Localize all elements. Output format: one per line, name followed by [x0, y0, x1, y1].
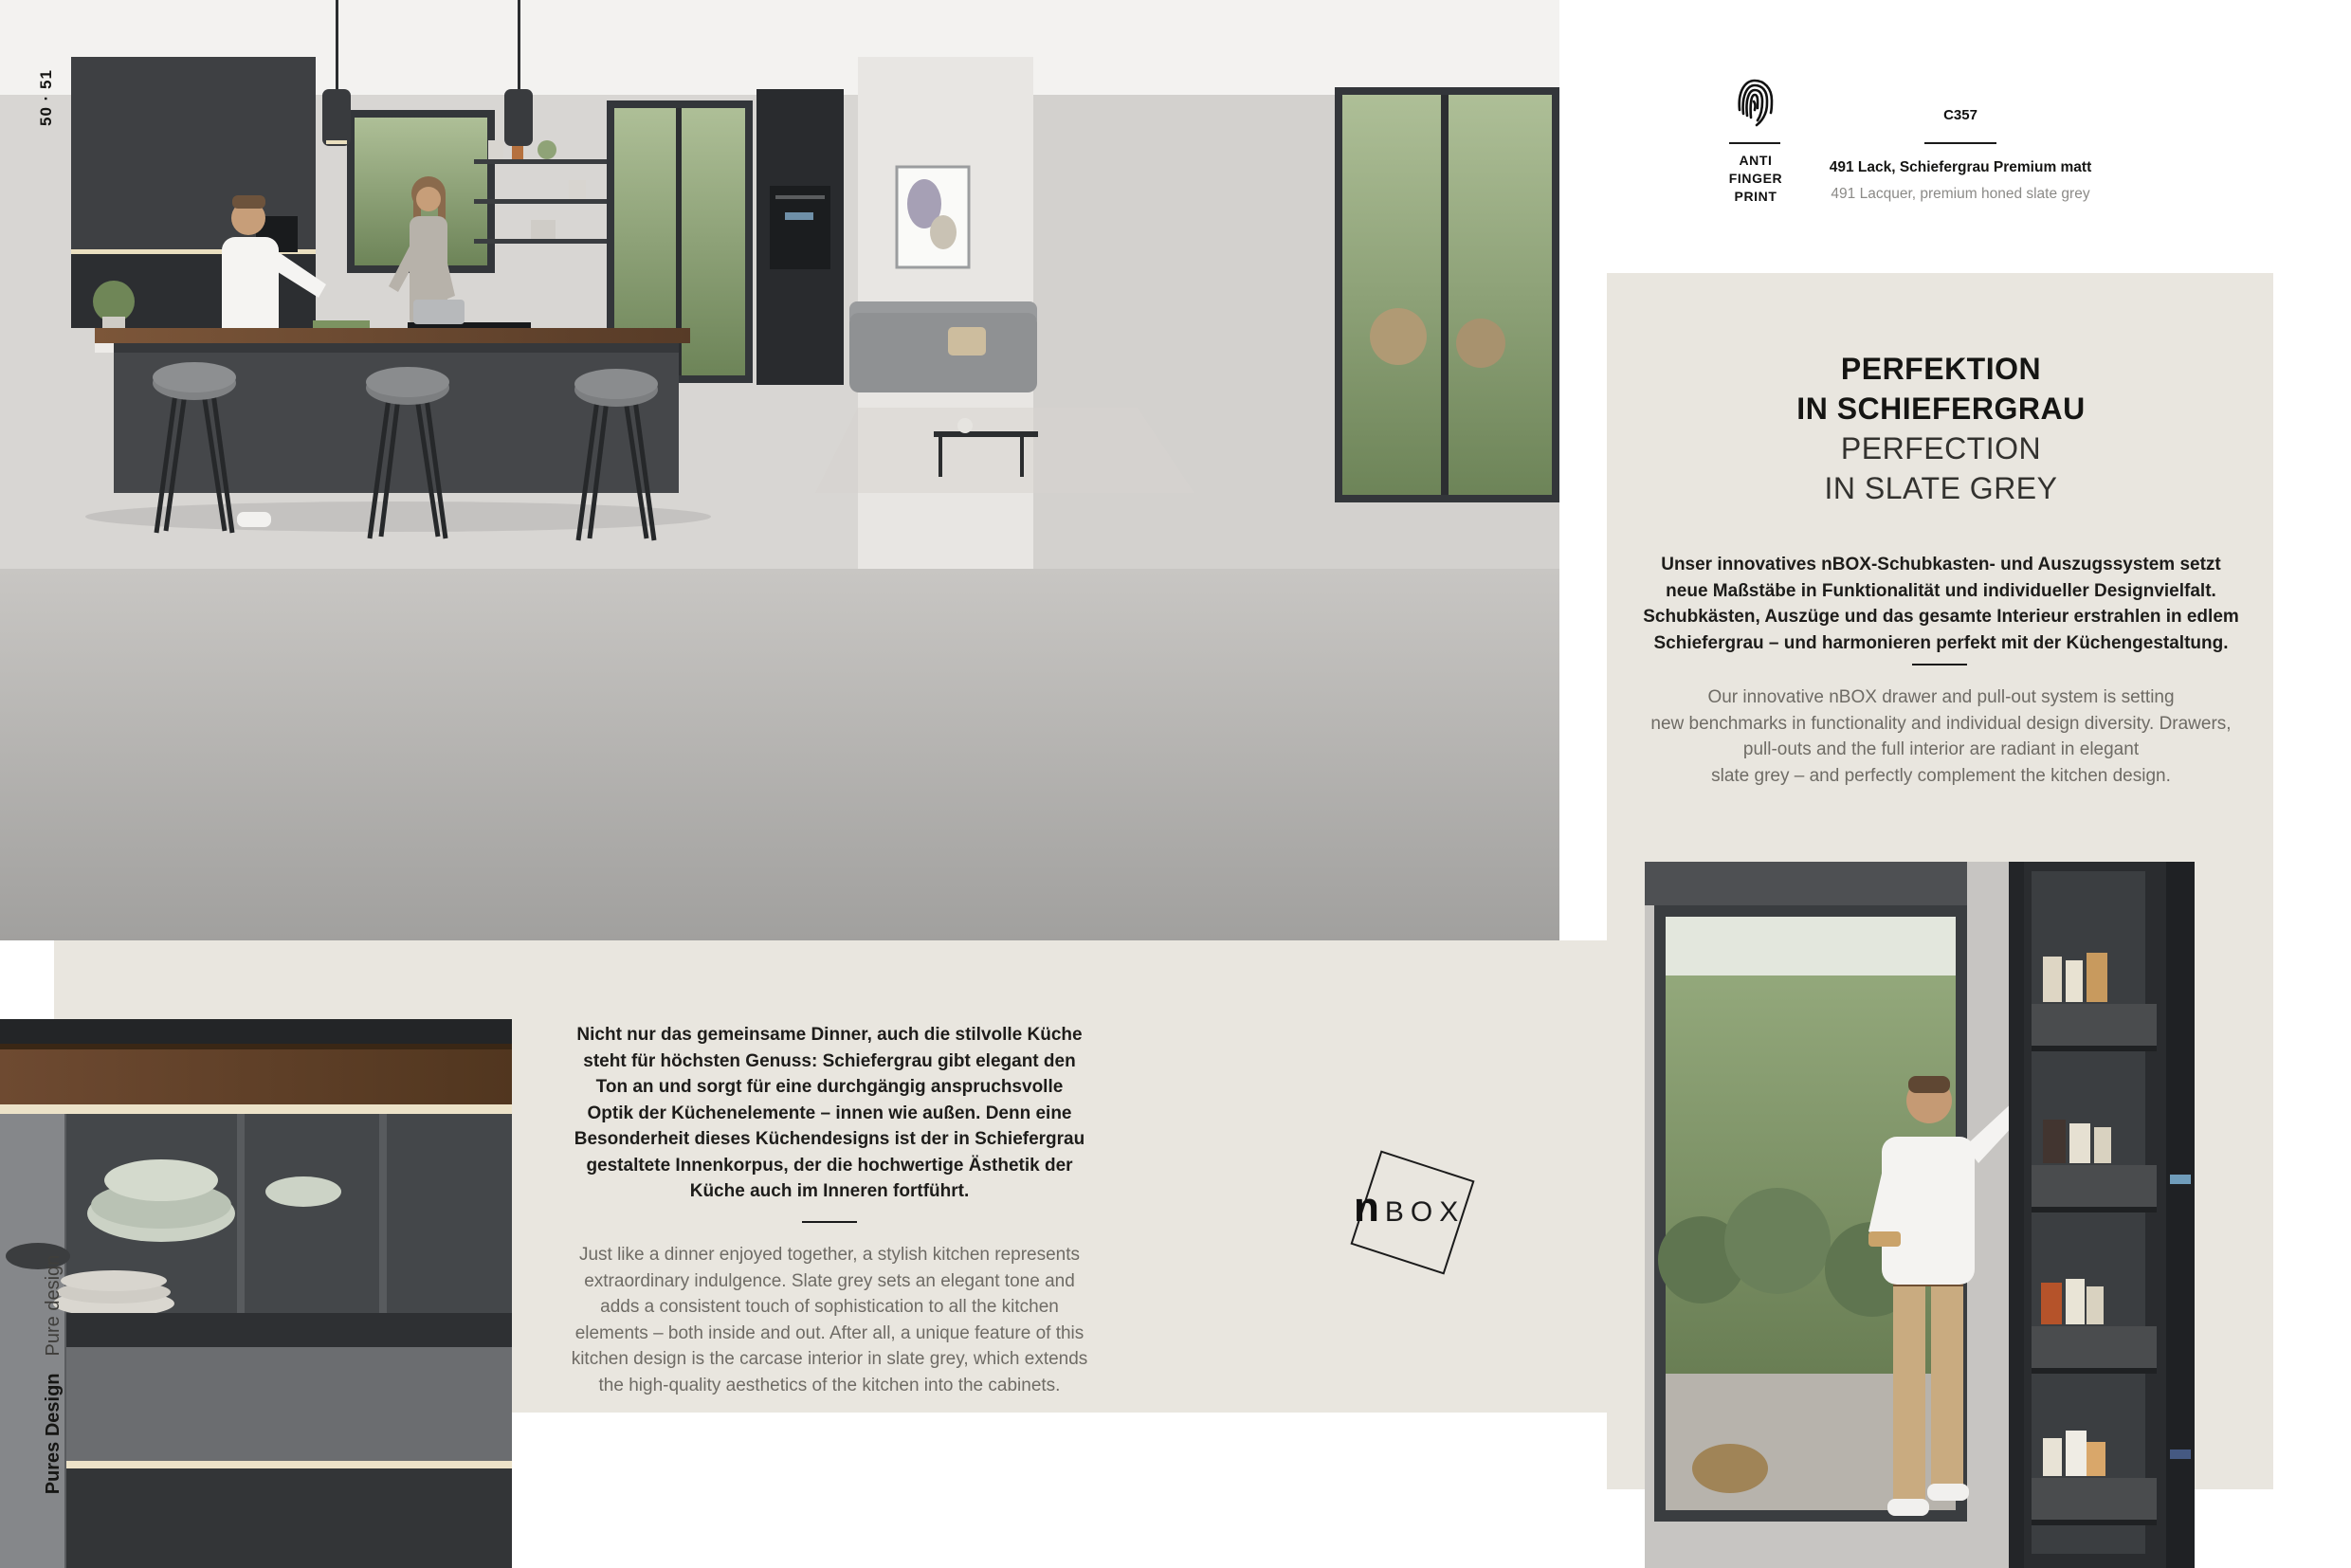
body-de-line: Nicht nur das gemeinsame Dinner, auch di… — [526, 1022, 1133, 1048]
side-label: Pures DesignPure design — [43, 1247, 65, 1503]
body-de-line: Besonderheit dieses Küchendesigns ist de… — [526, 1126, 1133, 1153]
body-de-line: neue Maßstäbe in Funktionalität und indi… — [1621, 578, 2261, 605]
body-en-line: elements – both inside and out. After al… — [526, 1321, 1133, 1347]
body-en-line: kitchen design is the carcase interior i… — [526, 1346, 1133, 1373]
catalog-spread: 50 · 51 ANTI FINGER PRINT C357 491 Lack,… — [0, 0, 2351, 1568]
divider-line — [802, 1221, 857, 1223]
nbox-logo-n: n — [1354, 1187, 1379, 1229]
divider-line — [1729, 142, 1780, 144]
heading-en-line-1: PERFECTION — [1621, 428, 2261, 468]
anti-fingerprint-icon — [1734, 76, 1776, 135]
body-de-line: steht für höchsten Genuss: Schiefergrau … — [526, 1048, 1133, 1075]
body-de-line: Schubkästen, Auszüge und das gesamte Int… — [1621, 604, 2261, 630]
body-de-line: Ton an und sorgt für eine durchgängig an… — [526, 1074, 1133, 1101]
mid-body-en: Just like a dinner enjoyed together, a s… — [526, 1242, 1133, 1398]
finish-code: C357 — [1866, 107, 2055, 123]
right-panel-body-de: Unser innovatives nBOX-Schubkasten- und … — [1621, 552, 2261, 656]
larder-photo-art — [1645, 862, 2195, 1568]
heading-de-line-1: PERFEKTION — [1621, 349, 2261, 389]
body-de-line: Unser innovatives nBOX-Schubkasten- und … — [1621, 552, 2261, 578]
right-panel-heading: PERFEKTION IN SCHIEFERGRAU PERFECTION IN… — [1621, 349, 2261, 508]
body-de-line: gestaltete Innenkorpus, der die hochwert… — [526, 1153, 1133, 1179]
side-label-de: Pures Design — [43, 1373, 64, 1494]
mid-body-de: Nicht nur das gemeinsame Dinner, auch di… — [526, 1022, 1133, 1205]
body-de-line: Küche auch im Inneren fortführt. — [526, 1178, 1133, 1205]
right-panel-body-en: Our innovative nBOX drawer and pull-out … — [1621, 684, 2261, 789]
heading-de-line-2: IN SCHIEFERGRAU — [1621, 389, 2261, 428]
body-en-line: adds a consistent touch of sophisticatio… — [526, 1294, 1133, 1321]
nbox-logo-text: n BOX — [1354, 1187, 1486, 1234]
kitchen-photo — [0, 0, 1559, 940]
body-en-line: the high-quality aesthetics of the kitch… — [526, 1373, 1133, 1399]
body-de-line: Optik der Küchenelemente – innen wie auß… — [526, 1101, 1133, 1127]
body-en-line: Just like a dinner enjoyed together, a s… — [526, 1242, 1133, 1268]
heading-en-line-2: IN SLATE GREY — [1621, 468, 2261, 508]
drawer-photo — [0, 1019, 512, 1568]
body-en-line: Our innovative nBOX drawer and pull-out … — [1621, 684, 2261, 711]
page-number: 50 · 51 — [37, 50, 54, 145]
finish-name-en: 491 Lacquer, premium honed slate grey — [1771, 186, 2150, 203]
divider-line — [1924, 142, 1996, 144]
divider-line — [1912, 664, 1967, 665]
body-en-line: new benchmarks in functionality and indi… — [1621, 711, 2261, 738]
finish-name-de: 491 Lack, Schiefergrau Premium matt — [1771, 159, 2150, 176]
side-label-en: Pure design — [43, 1255, 64, 1357]
larder-photo — [1645, 862, 2195, 1568]
body-de-line: Schiefergrau – und harmonieren perfekt m… — [1621, 630, 2261, 657]
nbox-logo-box: BOX — [1385, 1196, 1465, 1229]
body-en-line: slate grey – and perfectly complement th… — [1621, 763, 2261, 790]
body-en-line: extraordinary indulgence. Slate grey set… — [526, 1268, 1133, 1295]
body-en-line: pull-outs and the full interior are radi… — [1621, 737, 2261, 763]
drawer-photo-art — [0, 1019, 512, 1568]
kitchen-photo-art — [0, 0, 1559, 940]
